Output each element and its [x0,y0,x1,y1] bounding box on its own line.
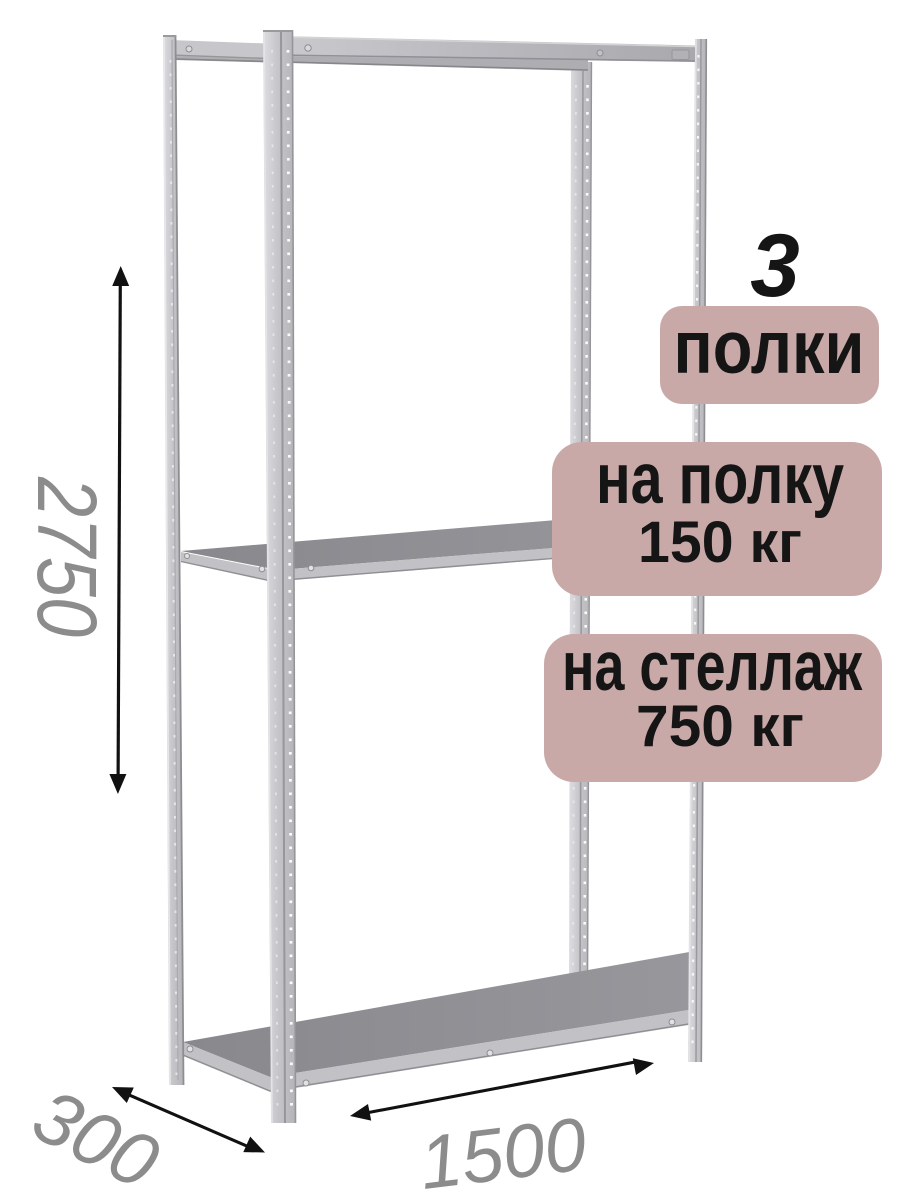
svg-text:2750: 2750 [20,476,114,637]
svg-text:3: 3 [750,215,800,315]
svg-text:750 кг: 750 кг [636,694,804,759]
svg-text:на полку: на полку [596,440,844,519]
svg-text:1500: 1500 [415,1101,591,1200]
svg-text:полки: полки [674,305,865,389]
svg-text:300: 300 [20,1073,172,1200]
svg-text:150 кг: 150 кг [638,510,802,575]
